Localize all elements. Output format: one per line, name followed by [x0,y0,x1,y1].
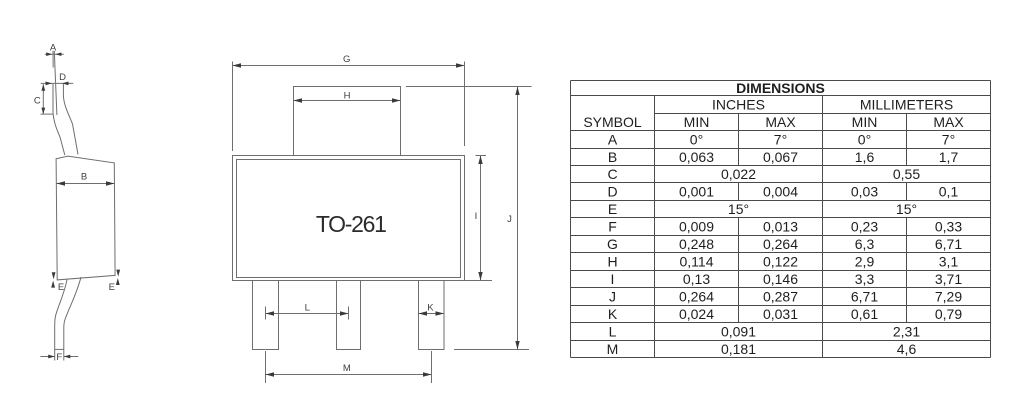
svg-text:4,6: 4,6 [897,341,917,357]
svg-text:2,31: 2,31 [893,324,920,340]
svg-text:6,3: 6,3 [855,236,875,252]
svg-text:0,031: 0,031 [763,306,798,322]
svg-text:0,091: 0,091 [721,324,756,340]
svg-text:D: D [59,72,66,83]
svg-text:6,71: 6,71 [935,236,962,252]
svg-text:I: I [611,271,615,287]
svg-text:0,13: 0,13 [683,271,710,287]
svg-text:F: F [608,219,617,235]
svg-text:0,03: 0,03 [851,184,878,200]
svg-text:0,61: 0,61 [851,306,878,322]
svg-text:M: M [343,363,351,374]
svg-text:F: F [56,352,62,363]
svg-text:E: E [58,282,64,293]
svg-text:1,6: 1,6 [855,149,875,165]
svg-text:MILLIMETERS: MILLIMETERS [860,97,953,113]
svg-text:0,264: 0,264 [679,289,714,305]
svg-text:H: H [344,91,351,102]
svg-text:0,001: 0,001 [679,184,714,200]
svg-text:0,063: 0,063 [679,149,714,165]
svg-text:0,009: 0,009 [679,219,714,235]
svg-text:0,33: 0,33 [935,219,962,235]
svg-text:MIN: MIN [684,114,710,130]
svg-text:MAX: MAX [933,114,964,130]
svg-text:6,71: 6,71 [851,289,878,305]
svg-text:I: I [475,211,478,222]
svg-text:E: E [608,201,617,217]
svg-text:15°: 15° [728,201,749,217]
svg-text:TO-261: TO-261 [316,211,386,237]
svg-text:0,1: 0,1 [939,184,959,200]
svg-text:3,3: 3,3 [855,271,875,287]
svg-text:C: C [34,95,41,106]
svg-text:0,146: 0,146 [763,271,798,287]
svg-text:0,067: 0,067 [763,149,798,165]
svg-text:L: L [609,324,617,340]
svg-text:7°: 7° [774,132,787,148]
svg-text:0,114: 0,114 [680,254,714,270]
svg-text:DIMENSIONS: DIMENSIONS [736,80,825,96]
svg-text:0,013: 0,013 [763,219,798,235]
svg-text:MAX: MAX [765,114,796,130]
svg-text:G: G [607,236,618,252]
svg-text:G: G [343,54,350,65]
svg-text:E: E [109,282,115,293]
svg-text:2,9: 2,9 [855,254,875,270]
svg-text:A: A [608,132,618,148]
svg-text:J: J [609,289,616,305]
svg-text:3,1: 3,1 [939,254,959,270]
svg-text:INCHES: INCHES [712,97,765,113]
svg-text:0,248: 0,248 [679,236,714,252]
svg-text:K: K [608,306,618,322]
svg-text:0,264: 0,264 [763,236,798,252]
svg-text:SYMBOL: SYMBOL [583,114,642,130]
svg-text:0,181: 0,181 [721,341,756,357]
svg-text:D: D [607,184,617,200]
svg-text:J: J [507,214,512,225]
svg-text:M: M [607,341,619,357]
svg-text:7,29: 7,29 [935,289,962,305]
svg-text:0,79: 0,79 [935,306,962,322]
svg-text:0,024: 0,024 [679,306,714,322]
svg-text:7°: 7° [942,132,955,148]
svg-text:L: L [305,302,310,313]
svg-text:B: B [608,149,617,165]
svg-text:3,71: 3,71 [935,271,962,287]
svg-text:K: K [427,302,434,313]
svg-text:0,23: 0,23 [851,219,878,235]
svg-text:0°: 0° [858,132,871,148]
svg-text:0,022: 0,022 [721,166,756,182]
svg-text:0,004: 0,004 [763,184,798,200]
svg-text:0,287: 0,287 [763,289,798,305]
svg-text:MIN: MIN [852,114,878,130]
svg-text:15°: 15° [896,201,917,217]
svg-text:H: H [607,254,617,270]
svg-text:0,122: 0,122 [763,254,798,270]
svg-text:C: C [607,166,617,182]
svg-text:0,55: 0,55 [893,166,920,182]
svg-text:0°: 0° [690,132,703,148]
svg-text:1,7: 1,7 [939,149,959,165]
svg-text:B: B [81,172,87,183]
